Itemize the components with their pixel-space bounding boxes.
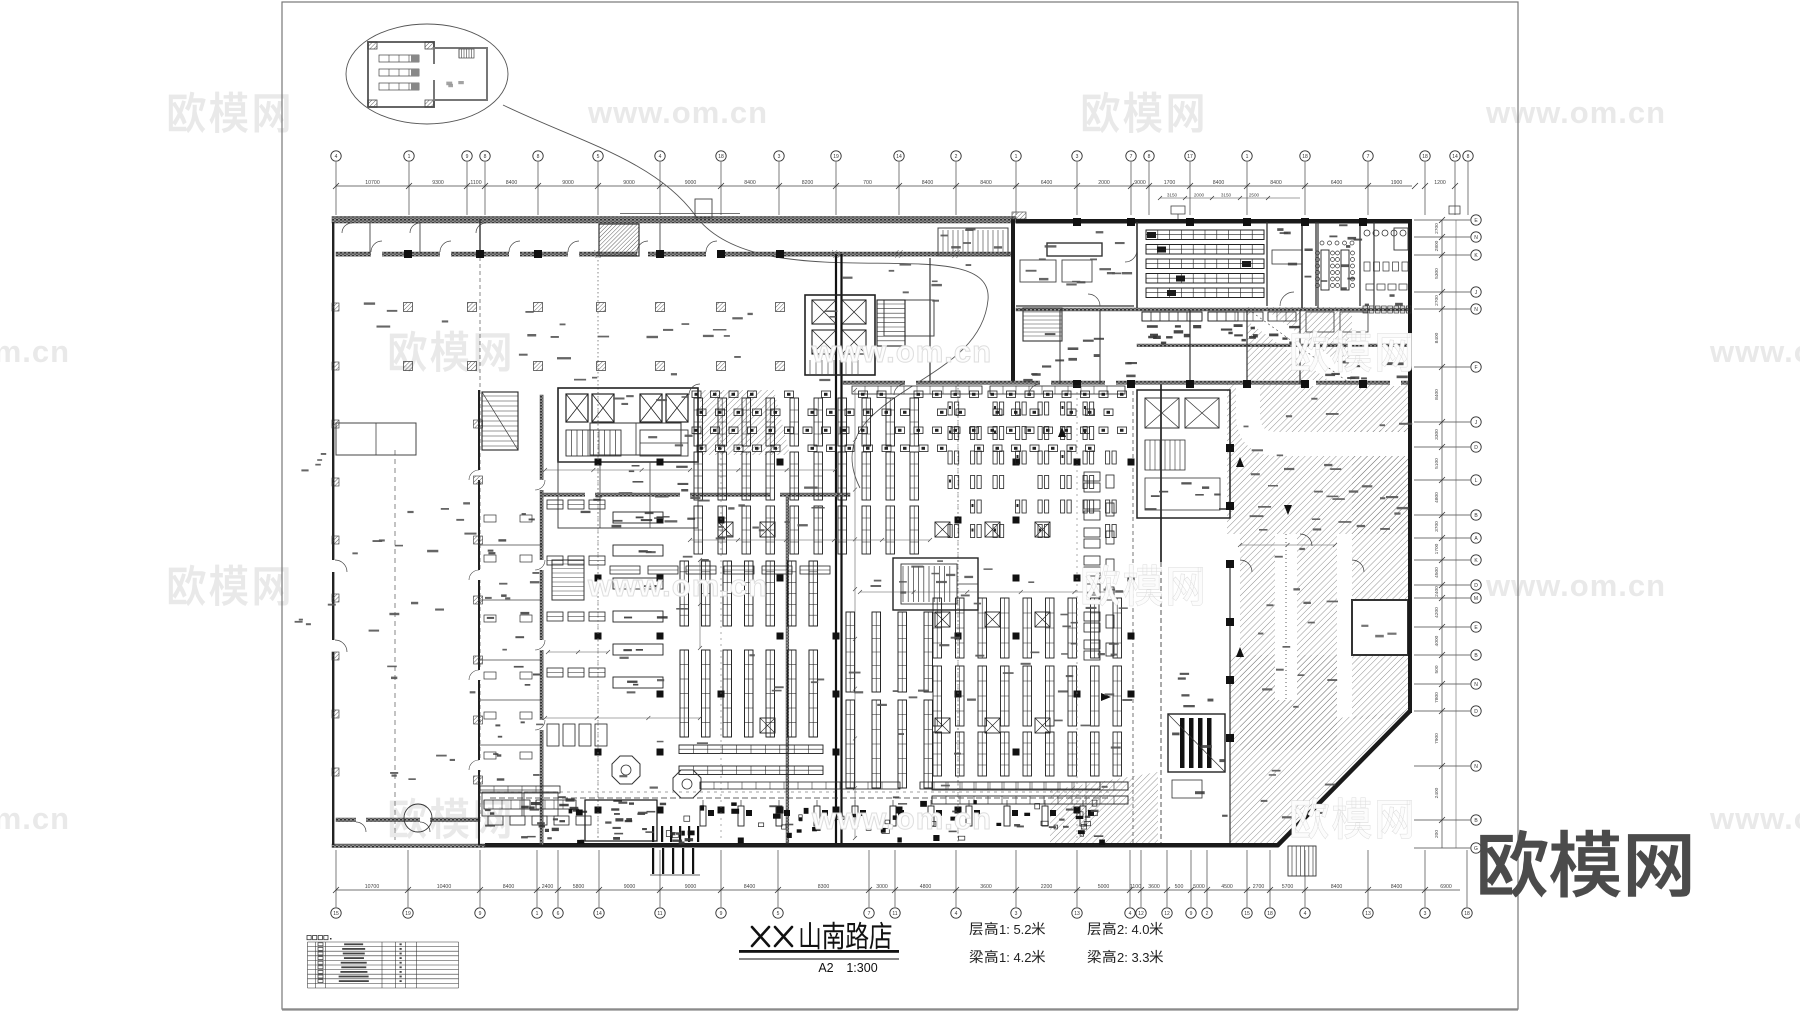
svg-text:1700: 1700 [1434,543,1440,554]
svg-text:2000: 2000 [1098,180,1110,186]
svg-text:4500: 4500 [1434,567,1440,578]
svg-text:L: L [1475,478,1478,484]
svg-text:3: 3 [1424,911,1427,917]
svg-text:www.om.cn: www.om.cn [0,334,70,369]
svg-text:500: 500 [1434,665,1440,673]
svg-text:www.om.cn: www.om.cn [811,334,992,369]
svg-text:9300: 9300 [432,180,444,186]
svg-text:1: 1 [1246,154,1249,160]
svg-text:13: 13 [1365,911,1371,917]
svg-text:7: 7 [1367,154,1370,160]
svg-text:2000: 2000 [1194,193,1205,198]
svg-text:2700: 2700 [1434,223,1440,234]
svg-text:8400: 8400 [503,884,515,890]
svg-text:6400: 6400 [1041,180,1053,186]
svg-text:www.om.cn: www.om.cn [1485,568,1666,603]
svg-text:2800: 2800 [1434,240,1440,251]
svg-text:1100: 1100 [470,180,481,186]
svg-text:1: 5.2: 1: 5.2 [999,922,1032,937]
svg-text:11: 11 [892,911,897,917]
svg-text:8400: 8400 [1391,884,1403,890]
svg-text:9: 9 [466,154,469,160]
svg-text:1700: 1700 [1164,180,1176,186]
svg-text:8: 8 [1148,154,1151,160]
svg-text:1:300: 1:300 [846,961,877,975]
svg-text:9000: 9000 [685,884,697,890]
svg-text:1: 1 [408,154,411,160]
svg-text:4: 4 [659,154,662,160]
svg-text:3: 3 [1015,911,1018,917]
svg-text:6400: 6400 [1331,180,1343,186]
svg-text:D: D [1474,583,1478,589]
svg-text:3700: 3700 [1434,521,1440,532]
svg-text:5: 5 [777,911,780,917]
svg-text:www.om.cn: www.om.cn [1709,801,1800,836]
svg-text:8: 8 [484,154,487,160]
svg-text:18: 18 [1267,911,1273,917]
svg-text:2: 2 [1206,911,1209,917]
svg-text:3150: 3150 [1221,193,1232,198]
svg-text:9000: 9000 [624,884,636,890]
svg-text:7900: 7900 [1434,733,1440,744]
svg-text:www.om.cn: www.om.cn [0,801,70,836]
svg-text:4: 4 [335,154,338,160]
svg-text:2: 4.0: 2: 4.0 [1117,922,1150,937]
svg-text:4000: 4000 [1434,635,1440,646]
svg-text:14: 14 [896,154,902,160]
svg-text:3: 3 [778,154,781,160]
svg-text:F: F [1474,365,1477,371]
svg-text:9000: 9000 [685,180,697,186]
svg-text:6: 6 [557,911,560,917]
svg-text:3: 3 [1076,154,1079,160]
svg-text:18: 18 [718,154,724,160]
svg-text:8400: 8400 [1213,180,1225,186]
svg-text:8400: 8400 [506,180,518,186]
svg-text:4200: 4200 [1434,607,1440,618]
svg-text:6900: 6900 [1440,884,1452,890]
svg-text:1: 1 [536,911,539,917]
svg-text:4800: 4800 [1434,492,1440,503]
svg-text:1900: 1900 [1391,180,1403,186]
svg-text:10400: 10400 [437,884,452,890]
svg-text:9000: 9000 [623,180,635,186]
svg-text:2200: 2200 [1041,884,1053,890]
svg-text:15: 15 [333,911,339,917]
svg-text:N: N [1474,235,1478,241]
svg-text:D: D [1474,709,1478,715]
svg-text:3150: 3150 [1167,193,1178,198]
svg-text:5000: 5000 [1193,884,1205,890]
svg-text:G: G [1474,846,1478,852]
svg-text:M: M [1474,596,1478,602]
svg-text:3300: 3300 [1434,429,1440,440]
svg-text:11: 11 [657,911,662,917]
svg-text:18: 18 [1464,911,1470,917]
svg-text:5800: 5800 [573,884,585,890]
svg-text:www.om.cn: www.om.cn [587,95,768,130]
svg-text:9: 9 [1190,911,1193,917]
svg-text:8400: 8400 [1270,180,1282,186]
svg-text:2400: 2400 [1434,586,1440,597]
svg-text:5: 5 [597,154,600,160]
svg-text:2400: 2400 [542,884,554,890]
svg-text:2400: 2400 [1434,787,1440,798]
svg-text:8400: 8400 [1331,884,1343,890]
svg-text:2: 2 [955,154,958,160]
svg-text:17: 17 [1187,154,1193,160]
svg-text:4500: 4500 [1221,884,1233,890]
svg-text:10700: 10700 [365,884,380,890]
svg-text:3600: 3600 [1148,884,1160,890]
svg-text:2700: 2700 [1434,295,1440,306]
svg-text:www.om.cn: www.om.cn [1709,334,1800,369]
svg-text:5000: 5000 [1098,884,1110,890]
svg-text:18: 18 [1422,154,1428,160]
svg-text:8400: 8400 [1434,389,1440,400]
svg-text:9: 9 [720,911,723,917]
svg-text:8400: 8400 [1434,332,1440,343]
svg-text:A2: A2 [818,961,833,975]
svg-text:7: 7 [868,911,871,917]
svg-text:14: 14 [596,911,602,917]
svg-text:18: 18 [1302,154,1308,160]
svg-text:8400: 8400 [744,180,756,186]
svg-text:10700: 10700 [365,180,380,186]
svg-text:7: 7 [1130,154,1133,160]
svg-text:15: 15 [1244,911,1250,917]
svg-text:13: 13 [1074,911,1080,917]
svg-text:N: N [1474,307,1478,313]
svg-text:7800: 7800 [1434,692,1440,703]
svg-text:www.om.cn: www.om.cn [587,568,768,603]
svg-text:9000: 9000 [562,180,574,186]
svg-text:N: N [1474,682,1478,688]
svg-text:8200: 8200 [802,180,814,186]
svg-text:5300: 5300 [1434,268,1440,279]
svg-text:8400: 8400 [922,180,934,186]
svg-text:8: 8 [1467,154,1470,160]
svg-text:4: 4 [955,911,958,917]
svg-text:1100: 1100 [1130,884,1141,890]
svg-text:8300: 8300 [818,884,830,890]
svg-text:14: 14 [1452,154,1458,160]
svg-text:1: 1 [1015,154,1018,160]
svg-text:4: 4 [1129,911,1132,917]
svg-text:1200: 1200 [1434,180,1446,186]
svg-text:2700: 2700 [1253,884,1265,890]
svg-text:1: 4.2: 1: 4.2 [999,950,1032,965]
svg-text:D: D [1474,445,1478,451]
svg-text:4: 4 [1304,911,1307,917]
svg-text:200: 200 [1434,830,1440,838]
svg-text:500: 500 [1175,884,1184,890]
svg-text:8400: 8400 [744,884,756,890]
svg-text:9000: 9000 [1134,180,1146,186]
svg-text:8: 8 [537,154,540,160]
svg-text:3600: 3600 [980,884,992,890]
svg-text:9: 9 [479,911,482,917]
svg-text:3000: 3000 [876,884,888,890]
svg-text:2500: 2500 [1249,193,1260,198]
svg-text:5100: 5100 [1434,458,1440,469]
svg-text:8400: 8400 [980,180,992,186]
svg-text:12: 12 [1138,911,1144,917]
svg-text:5700: 5700 [1282,884,1294,890]
svg-text:19: 19 [833,154,839,160]
svg-text:12: 12 [1164,911,1170,917]
svg-text:N: N [1474,764,1478,770]
svg-text:4800: 4800 [920,884,932,890]
svg-text:19: 19 [405,911,411,917]
svg-text:www.om.cn: www.om.cn [1485,95,1666,130]
svg-text:2: 3.3: 2: 3.3 [1117,950,1150,965]
svg-text:www.om.cn: www.om.cn [811,801,992,836]
svg-text:700: 700 [863,180,872,186]
